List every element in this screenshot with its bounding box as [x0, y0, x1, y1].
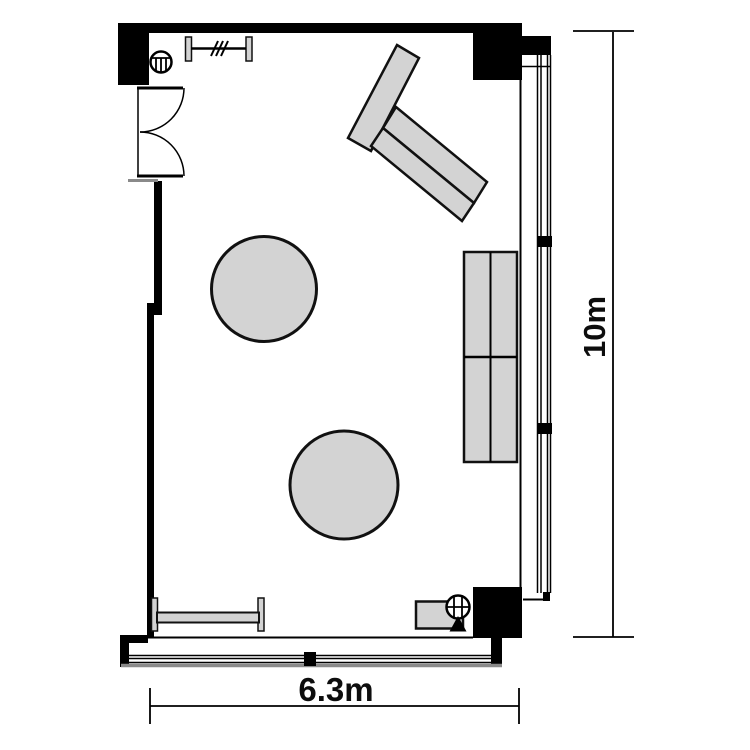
bench [152, 598, 265, 631]
wall-top [118, 23, 522, 33]
column-top-left [118, 23, 149, 85]
window-mullion [537, 236, 552, 247]
wall-bottom-left-cap-v [120, 635, 129, 667]
column-bottom-right [473, 587, 522, 638]
coat-rack-post [246, 37, 252, 61]
floor-plan-drawing [0, 0, 750, 750]
coat-rack-post [186, 37, 192, 61]
full-height-window-right [522, 55, 552, 601]
low-cabinet-group [416, 595, 470, 632]
column-bottom-right-stub [491, 638, 502, 666]
window-bottom [121, 652, 502, 666]
bench-seat [157, 613, 259, 623]
entrance-door [128, 88, 184, 181]
window-mullion [537, 423, 552, 434]
door-swing-arc [140, 132, 184, 176]
window-mullion [304, 652, 316, 666]
column-top-right [473, 23, 522, 80]
circular-fixture-icon [150, 52, 172, 74]
door-swing-arc [140, 88, 184, 132]
height-dimension-label: 10m [577, 277, 613, 377]
angled-table-set [348, 45, 487, 221]
floor-plan: 10m 6.3m [0, 0, 750, 750]
wall-left-upper [154, 181, 162, 312]
column-top-right-stub [522, 36, 551, 55]
round-table-1 [212, 237, 317, 342]
round-table-2 [290, 431, 398, 539]
side-table-block [464, 252, 517, 462]
width-dimension-label: 6.3m [266, 671, 406, 709]
wall-left-lower [147, 310, 154, 638]
coat-rack-icon [186, 37, 253, 61]
